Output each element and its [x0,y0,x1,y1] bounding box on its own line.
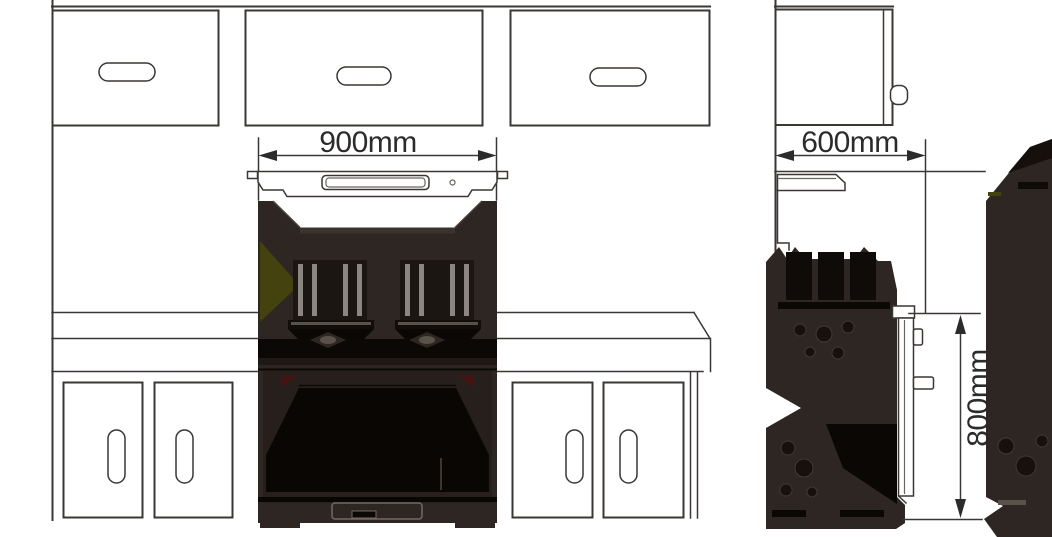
dim-arrow-left-icon [259,150,278,161]
cabinet-handle [99,63,155,81]
oven-door-front [258,370,497,504]
width-dimension-label: 900mm [319,126,417,159]
diagram-canvas: 900mm [0,0,1052,537]
cabinet-handle [176,430,193,483]
oven-door-glass [266,388,489,492]
perspective-handle [1018,182,1048,189]
perspective-view [984,139,1052,537]
cabinet-handle [108,430,125,483]
base-cabinet-door [64,383,143,518]
dim-arrow-up-icon [955,315,966,334]
cabinet-handle [891,86,908,105]
range-cooker-side [766,247,905,529]
base-cabinet-right [513,372,698,518]
dim-arrow-left-icon [776,150,795,161]
upper-cabinet-side [775,7,908,126]
cabinet-handle [590,68,646,86]
control-knob [320,336,336,344]
base-cabinet-left [64,383,233,518]
dim-arrow-right-icon [907,150,926,161]
cabinet-handle [566,430,583,483]
dim-arrow-right-icon [478,150,497,161]
oven-door-side [893,306,934,503]
pan-support-left [288,260,374,341]
door-handle-stub [914,329,923,345]
side-view: 600mm [766,0,995,529]
control-knob [419,336,435,344]
door-handle-stub [914,377,934,389]
front-view: 900mm [52,0,711,528]
pan-support-right [395,260,481,341]
cooker-foot [455,523,495,528]
cooker-foot [260,523,300,528]
base-cabinet-door [604,383,684,518]
cabinet-handle [337,67,391,85]
cooker-control-panel [248,172,508,197]
cooker-perspective-body [984,139,1052,537]
range-cooker-front [258,201,497,528]
dim-arrow-down-icon [955,499,966,518]
upper-cabinets-front [52,7,710,126]
cabinet-handle [620,430,637,483]
backguard-side [778,175,846,251]
upper-cabinet-carcass [776,10,893,126]
installation-diagram: 900mm [0,0,1052,537]
depth-dimension-label: 600mm [801,126,899,159]
